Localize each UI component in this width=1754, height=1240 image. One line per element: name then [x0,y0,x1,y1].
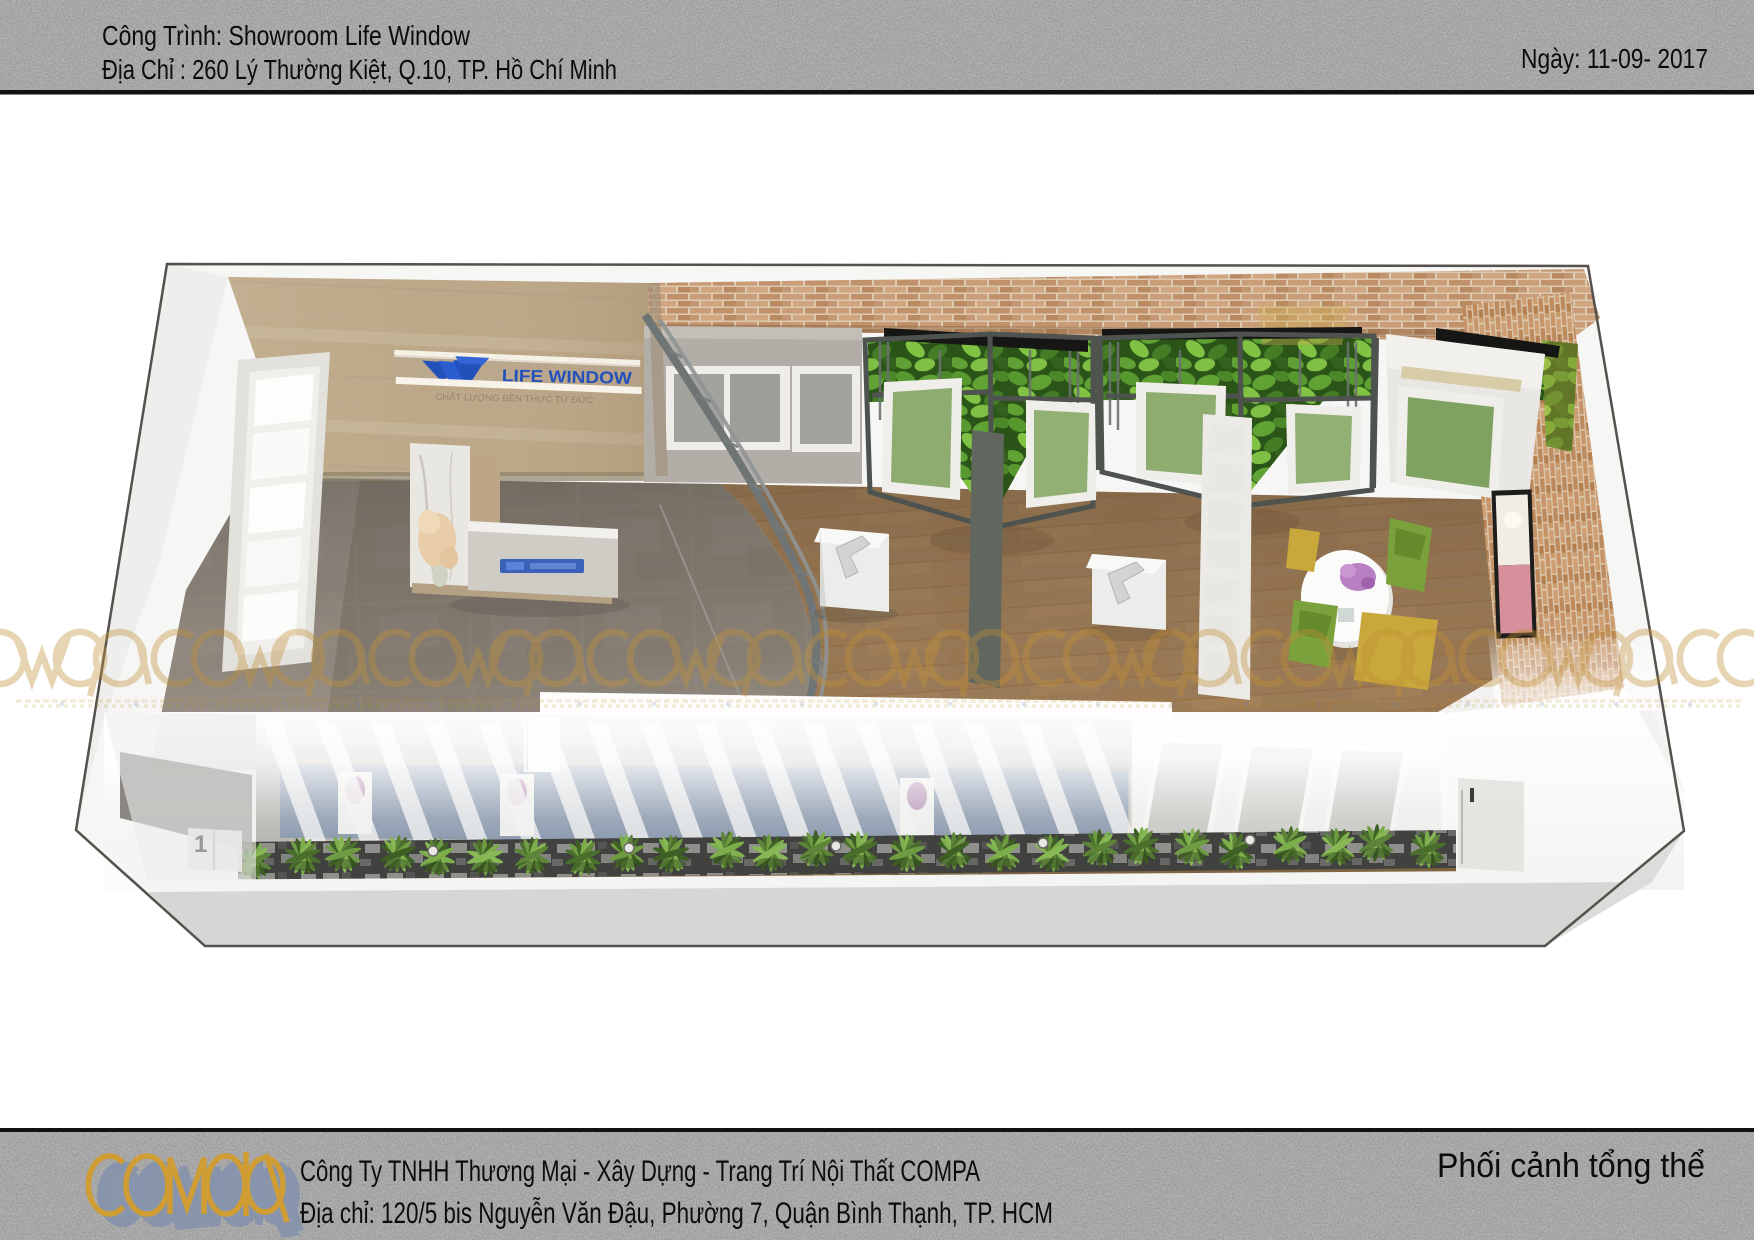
svg-text:Phối cảnh tổng thể: Phối cảnh tổng thể [1437,1147,1705,1185]
svg-text:Địa chỉ: 120/5 bis Nguyễn Văn: Địa chỉ: 120/5 bis Nguyễn Văn Đậu, Phườn… [300,1197,1053,1230]
svg-text:Địa Chỉ : 260 Lý Thường Kiệt,: Địa Chỉ : 260 Lý Thường Kiệt, Q.10, TP. … [102,54,617,85]
svg-text:Công Trình: Showroom Life Wind: Công Trình: Showroom Life Window [102,20,471,51]
svg-text:Ngày: 11-09- 2017: Ngày: 11-09- 2017 [1521,43,1708,74]
svg-text:Công Ty TNHH Thương Mại - Xây: Công Ty TNHH Thương Mại - Xây Dựng - Tra… [300,1155,980,1188]
